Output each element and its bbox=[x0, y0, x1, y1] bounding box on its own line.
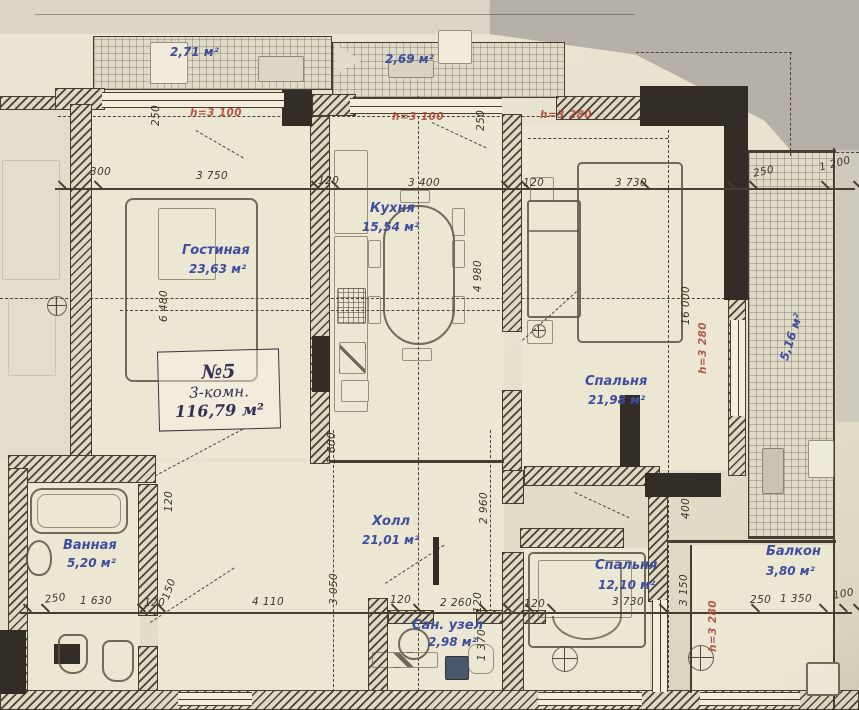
room-area-label: 23,63 м² bbox=[189, 262, 246, 276]
dimension-label: 1 370 bbox=[476, 629, 488, 661]
apartment-stamp: №5 3-комн. 116,79 м² bbox=[157, 348, 281, 431]
dimension-label: 2 960 bbox=[478, 492, 490, 524]
room-name-label: Гостиная bbox=[182, 243, 250, 258]
window bbox=[700, 692, 800, 706]
chair bbox=[452, 240, 465, 268]
dimension-label: 16 000 bbox=[680, 286, 692, 325]
washing-machine bbox=[445, 656, 469, 680]
photo-margin-top bbox=[0, 0, 492, 34]
apartment-type: 3-комн. bbox=[189, 382, 249, 402]
dimension-label: 3 730 bbox=[615, 177, 647, 189]
room-area-label: 21,01 м² bbox=[362, 533, 419, 547]
wall-segment bbox=[70, 104, 92, 466]
wall-segment bbox=[310, 116, 330, 464]
dimension-label: 1 630 bbox=[80, 595, 112, 607]
toilet bbox=[102, 640, 134, 682]
room-area-label: 12,10 м² bbox=[598, 578, 655, 592]
room-name-label: Сан. узел bbox=[412, 618, 483, 633]
axis-dashed-line bbox=[490, 430, 491, 612]
window bbox=[102, 92, 284, 108]
height-note: h=3 100 bbox=[392, 111, 444, 123]
toilet bbox=[58, 634, 88, 674]
dimension-tick bbox=[853, 603, 859, 612]
apartment-number: №5 bbox=[201, 360, 235, 383]
chair bbox=[368, 296, 381, 324]
wc-counter bbox=[372, 652, 438, 668]
wall-segment bbox=[520, 528, 624, 548]
wall-segment bbox=[502, 390, 522, 472]
balcony-wall-line bbox=[668, 540, 836, 543]
dimension-label: 300 bbox=[90, 166, 111, 178]
wall-column bbox=[724, 86, 748, 300]
axis-dashed-line bbox=[636, 52, 792, 53]
wall-segment bbox=[502, 552, 524, 694]
wall-segment bbox=[8, 455, 156, 483]
dimension-label: 400 bbox=[680, 498, 692, 519]
dimension-label: 4 980 bbox=[472, 260, 484, 292]
kitchen-sink bbox=[337, 288, 366, 324]
floor-plan-photo: 3003 7501203 4001203 7302501 2002501 630… bbox=[0, 0, 859, 710]
wall-column bbox=[312, 336, 330, 392]
room-area-label: 5,20 м² bbox=[67, 556, 116, 570]
balcony-unit bbox=[806, 662, 840, 696]
height-note: h=3 280 bbox=[697, 322, 709, 374]
dimension-label: 3 150 bbox=[678, 574, 690, 606]
axis-dashed-line bbox=[333, 430, 334, 692]
dimension-label: 120 bbox=[318, 175, 339, 187]
height-note: h=3 280 bbox=[540, 109, 592, 121]
apartment-total-area: 116,79 м² bbox=[175, 399, 264, 420]
window bbox=[730, 320, 746, 416]
stove bbox=[339, 342, 366, 374]
wall-line bbox=[330, 460, 504, 463]
facade-line bbox=[35, 14, 635, 15]
chair bbox=[452, 208, 465, 236]
balcony-furniture bbox=[258, 56, 304, 82]
room-name-label: Холл bbox=[372, 514, 410, 529]
dimension-label: 250 bbox=[750, 594, 771, 606]
chair bbox=[452, 296, 465, 324]
neighbor-furniture bbox=[2, 160, 60, 280]
wall-column bbox=[0, 630, 26, 694]
room-area-label: 21,98 м² bbox=[588, 393, 645, 407]
room-area-label: 3,80 м² bbox=[766, 564, 815, 578]
chair bbox=[402, 348, 432, 361]
balcony-furniture bbox=[438, 30, 472, 64]
wall-segment bbox=[502, 470, 524, 504]
radiator-icon bbox=[552, 646, 578, 672]
dimension-label: 250 bbox=[475, 110, 487, 131]
area-label: 2,69 м² bbox=[385, 52, 434, 66]
wall-column bbox=[645, 473, 721, 497]
bathroom-sink bbox=[26, 540, 52, 576]
radiator-icon bbox=[47, 296, 67, 316]
bedroom-1-rug bbox=[577, 162, 683, 343]
dimension-label: 3 730 bbox=[612, 596, 644, 608]
dimension-label: 120 bbox=[144, 597, 165, 609]
dimension-tick bbox=[839, 603, 848, 612]
wall-segment bbox=[138, 646, 158, 694]
dimension-label: 1 600 bbox=[326, 432, 338, 464]
dimension-label: 6 480 bbox=[158, 290, 170, 322]
dimension-label: 3 050 bbox=[328, 573, 340, 605]
window bbox=[178, 692, 252, 706]
nightstand-lamp-icon bbox=[532, 324, 546, 338]
loggia-box bbox=[808, 440, 834, 478]
room-area-label: 15,54 м² bbox=[362, 220, 419, 234]
bed-pillow-line bbox=[529, 230, 579, 232]
kitchen-cabinet bbox=[341, 380, 369, 402]
wall-segment bbox=[524, 466, 660, 486]
wall-segment bbox=[0, 96, 56, 110]
wall-column bbox=[282, 90, 312, 126]
room-name-label: Кухня bbox=[370, 201, 415, 216]
room-name-label: Спальня bbox=[585, 374, 647, 389]
room-name-label: Ванная bbox=[63, 538, 117, 553]
dimension-label: 4 110 bbox=[252, 596, 284, 608]
dimension-label: 2 260 bbox=[440, 597, 472, 609]
height-note: h=3 280 bbox=[707, 600, 719, 652]
axis-dashed-line bbox=[790, 52, 791, 156]
dimension-line bbox=[20, 612, 852, 614]
window bbox=[538, 692, 642, 706]
plan-edge-line bbox=[833, 148, 835, 710]
loggia-wall-line bbox=[748, 150, 836, 153]
dimension-label: 100 bbox=[832, 586, 855, 602]
dimension-label: 120 bbox=[163, 491, 175, 512]
balcony-wall-line bbox=[690, 545, 692, 693]
loggia-wall-line bbox=[748, 536, 834, 539]
axis-dashed-line bbox=[528, 138, 668, 139]
dimension-label: 120 bbox=[390, 594, 411, 606]
photo-margin-right bbox=[836, 150, 859, 422]
area-label: 2,71 м² bbox=[170, 45, 219, 59]
wall-segment bbox=[502, 114, 522, 332]
door-swing bbox=[575, 492, 630, 518]
dimension-label: 250 bbox=[150, 105, 162, 126]
dimension-label: 3 400 bbox=[408, 177, 440, 189]
dimension-label: 1 350 bbox=[780, 593, 812, 605]
bathtub-inner bbox=[37, 494, 121, 528]
dimension-label: 120 bbox=[472, 592, 484, 613]
room-name-label: Спальня bbox=[595, 558, 657, 573]
dimension-label: 3 750 bbox=[196, 170, 228, 182]
room-name-label: Балкон bbox=[766, 544, 821, 559]
bed bbox=[527, 200, 581, 318]
chair bbox=[368, 240, 381, 268]
dimension-label: 120 bbox=[524, 598, 545, 610]
dimension-label: 120 bbox=[523, 177, 544, 189]
height-note: h=3 100 bbox=[190, 107, 242, 119]
room-area-label: 2,98 м² bbox=[428, 635, 477, 649]
wall-column bbox=[433, 537, 439, 585]
loggia-box bbox=[762, 448, 784, 494]
